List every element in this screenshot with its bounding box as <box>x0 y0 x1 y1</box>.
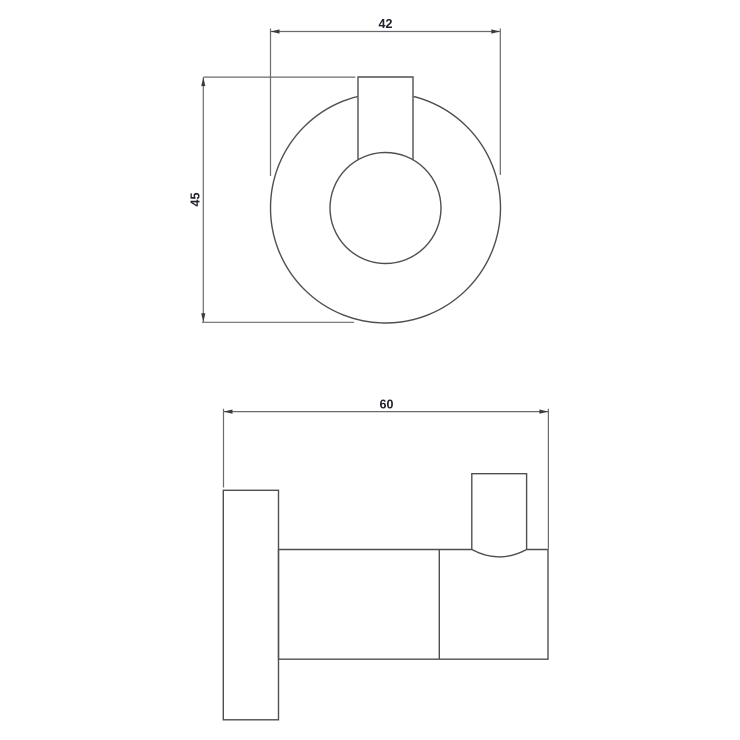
svg-text:45: 45 <box>189 193 203 207</box>
svg-text:42: 42 <box>379 17 393 31</box>
svg-text:60: 60 <box>380 398 394 412</box>
